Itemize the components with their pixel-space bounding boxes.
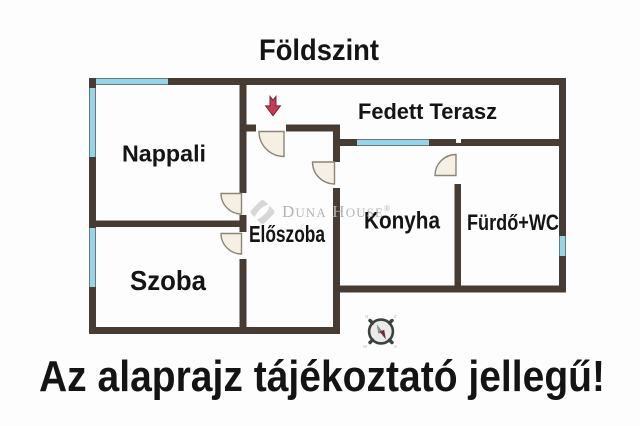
svg-text:Nappali: Nappali xyxy=(122,141,206,167)
svg-text:S: S xyxy=(394,344,397,349)
svg-text:Előszoba: Előszoba xyxy=(249,221,326,247)
svg-text:Szoba: Szoba xyxy=(130,265,206,296)
svg-text:N: N xyxy=(365,314,368,319)
svg-text:Az alaprajz tájékoztató jelleg: Az alaprajz tájékoztató jellegű! xyxy=(39,353,605,401)
svg-text:W: W xyxy=(363,344,368,349)
svg-text:Fürdő+WC: Fürdő+WC xyxy=(467,210,559,235)
svg-text:Fedett Terasz: Fedett Terasz xyxy=(358,99,497,124)
svg-text:Földszint: Földszint xyxy=(259,34,379,67)
svg-text:DUNA HOUSE®: DUNA HOUSE® xyxy=(282,202,391,221)
svg-text:E: E xyxy=(394,314,397,319)
